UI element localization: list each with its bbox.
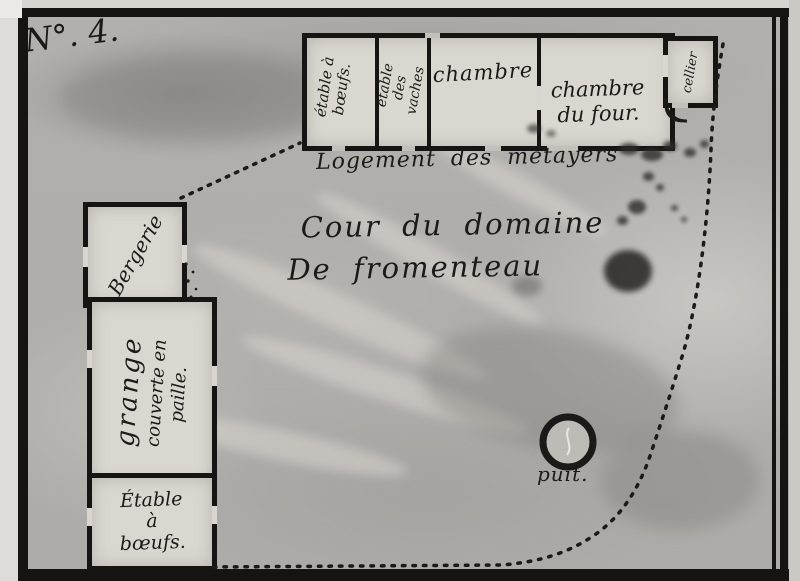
building-cellier: cellier bbox=[663, 36, 718, 108]
ink-blot bbox=[617, 216, 628, 225]
door-gap bbox=[537, 86, 541, 110]
frame-top bbox=[18, 8, 800, 17]
ink-blot bbox=[700, 140, 709, 148]
door-gap bbox=[212, 506, 217, 524]
door-gap bbox=[672, 103, 688, 108]
room-label-chambre: chambre bbox=[432, 59, 534, 87]
ink-blot bbox=[643, 172, 654, 181]
ink-blot bbox=[663, 141, 677, 151]
ink-blot bbox=[681, 217, 687, 222]
room-label-etable-vaches: étable des vaches bbox=[373, 52, 430, 123]
room-label-line: Étable bbox=[118, 489, 185, 513]
door-gap bbox=[83, 247, 88, 267]
room-label-grange: grange couverte en paille. bbox=[109, 330, 195, 455]
frame-right-inner bbox=[780, 8, 788, 581]
page-corner-highlight bbox=[0, 0, 22, 18]
frame-bottom bbox=[18, 569, 800, 581]
plate-number: N°. 4. bbox=[22, 10, 121, 59]
ink-blot bbox=[512, 276, 542, 296]
page-margin-left bbox=[0, 0, 18, 581]
ink-blot bbox=[628, 200, 646, 214]
courtyard-title-line2: De fromenteau bbox=[287, 243, 605, 291]
room-label-etable-bottom: Étable à bœufs. bbox=[118, 489, 186, 555]
ink-blot bbox=[671, 205, 678, 211]
door-gap bbox=[425, 33, 440, 38]
well-label: puit. bbox=[537, 462, 588, 486]
room-label-etable-boeufs: étable à bœufs. bbox=[311, 44, 355, 132]
door-gap bbox=[87, 350, 92, 368]
ink-blot bbox=[527, 124, 541, 133]
plan-sheet: N°. 4. étable à bœufs. étable des vaches… bbox=[0, 0, 800, 581]
frame-right-outer bbox=[772, 8, 776, 581]
ink-blot bbox=[546, 130, 556, 137]
ink-blot bbox=[656, 184, 664, 191]
door-gap bbox=[182, 245, 187, 263]
ink-blot bbox=[641, 148, 663, 161]
courtyard-title-line1: Cour du domaine bbox=[300, 201, 604, 248]
paper-stain bbox=[600, 430, 760, 530]
page-margin-top bbox=[0, 0, 800, 8]
building-logement: étable à bœufs. étable des vaches chambr… bbox=[302, 33, 675, 151]
ink-blot bbox=[684, 148, 696, 157]
door-gap bbox=[663, 55, 668, 77]
building-grange: grange couverte en paille. bbox=[87, 297, 217, 488]
building-etable-boeufs: Étable à bœufs. bbox=[87, 473, 217, 571]
page-margin-right bbox=[789, 0, 800, 581]
wall-divider bbox=[427, 38, 431, 146]
room-label-line: bœufs. bbox=[119, 531, 186, 555]
room-label-line: chambre bbox=[550, 75, 644, 103]
ink-blot bbox=[604, 250, 652, 292]
door-gap bbox=[87, 508, 92, 526]
building-bergerie: Bergerie bbox=[83, 202, 187, 308]
paper-stain bbox=[60, 55, 340, 140]
door-gap bbox=[212, 366, 217, 386]
room-label-line: du four. bbox=[551, 100, 645, 128]
ink-blot bbox=[619, 143, 639, 155]
room-label-cellier: cellier bbox=[680, 50, 702, 93]
room-label-bergerie: Bergerie bbox=[102, 211, 167, 300]
courtyard-title: Cour du domaine De fromenteau bbox=[286, 201, 605, 291]
dotted-boundary-left bbox=[181, 143, 300, 198]
frame-left bbox=[18, 8, 28, 573]
room-label-chambre-du-four: chambre du four. bbox=[550, 75, 645, 129]
